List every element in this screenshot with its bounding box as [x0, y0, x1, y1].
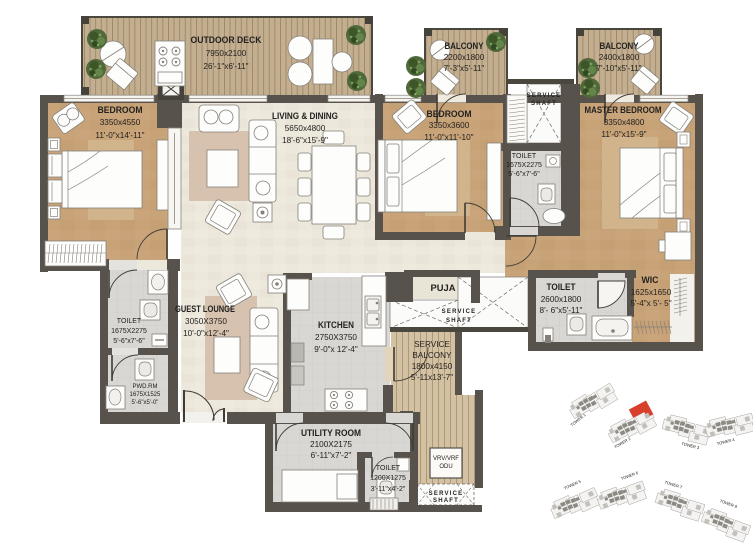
svg-text:5'-6"x7'-6": 5'-6"x7'-6" [508, 171, 540, 178]
svg-text:PWD.RM: PWD.RM [133, 384, 158, 390]
svg-text:1675X2275: 1675X2275 [506, 162, 542, 169]
svg-text:7'-10"x5'-11": 7'-10"x5'-11" [596, 64, 641, 73]
svg-text:2100X2175: 2100X2175 [310, 440, 352, 449]
svg-text:KITCHEN: KITCHEN [318, 320, 354, 330]
svg-text:5'-4"x 5'- 5": 5'-4"x 5'- 5" [630, 299, 671, 308]
svg-text:ODU: ODU [439, 464, 452, 470]
svg-text:TOILET: TOILET [547, 282, 576, 292]
svg-text:TOILET: TOILET [376, 465, 401, 472]
svg-text:9'-0"x 12'-4": 9'-0"x 12'-4" [314, 345, 358, 354]
svg-text:11'-0"x15'-9": 11'-0"x15'-9" [601, 130, 646, 139]
svg-text:5'-11x13'-7": 5'-11x13'-7" [411, 373, 453, 382]
svg-text:2200x1800: 2200x1800 [444, 53, 485, 62]
svg-text:26'-1"x6'-11": 26'-1"x6'-11" [203, 62, 248, 71]
svg-text:6'-11"x7'-2": 6'-11"x7'-2" [311, 451, 352, 460]
svg-text:MASTER BEDROOM: MASTER BEDROOM [585, 105, 662, 115]
svg-text:8'- 6"x5'-11": 8'- 6"x5'-11" [540, 306, 583, 315]
svg-text:TOILET: TOILET [512, 153, 537, 160]
svg-text:BEDROOM: BEDROOM [427, 109, 472, 119]
svg-text:1800x4150: 1800x4150 [412, 362, 453, 371]
svg-text:SERVICE: SERVICE [442, 309, 477, 315]
svg-text:BEDROOM: BEDROOM [98, 105, 143, 115]
svg-text:TOWER 8: TOWER 8 [719, 498, 738, 509]
svg-text:3350x3600: 3350x3600 [429, 121, 470, 130]
svg-text:2600x1800: 2600x1800 [541, 295, 582, 304]
svg-text:1675X1525: 1675X1525 [130, 392, 161, 398]
svg-text:7950x2100: 7950x2100 [206, 49, 247, 58]
svg-text:PUJA: PUJA [431, 283, 457, 293]
svg-text:TOWER 4: TOWER 4 [716, 437, 736, 446]
svg-text:SHAFT: SHAFT [446, 318, 472, 324]
svg-text:UTILITY ROOM: UTILITY ROOM [301, 428, 361, 438]
svg-text:OUTDOOR DECK: OUTDOOR DECK [191, 35, 262, 45]
svg-text:11'-0"x11'-10": 11'-0"x11'-10" [424, 133, 473, 142]
svg-text:TOWER 7: TOWER 7 [664, 480, 684, 490]
svg-text:TOILET: TOILET [117, 318, 142, 325]
svg-text:1200X1275: 1200X1275 [370, 475, 406, 482]
svg-text:LIVING & DINING: LIVING & DINING [272, 111, 338, 121]
svg-text:SHAFT: SHAFT [433, 498, 459, 504]
svg-text:GUEST LOUNGE: GUEST LOUNGE [175, 304, 235, 314]
svg-text:5'-6"x7'-6": 5'-6"x7'-6" [113, 338, 145, 345]
svg-text:SERVICE: SERVICE [429, 491, 464, 497]
svg-text:BALCONY: BALCONY [445, 41, 484, 51]
svg-text:1625x1650: 1625x1650 [631, 288, 672, 297]
svg-text:VRV/VRF: VRV/VRF [433, 456, 459, 462]
svg-text:BALCONY: BALCONY [600, 41, 639, 51]
svg-text:1675X2275: 1675X2275 [111, 328, 147, 335]
svg-text:5'-6"x5'-0": 5'-6"x5'-0" [132, 400, 159, 406]
svg-text:18'-6"x15'-9": 18'-6"x15'-9" [282, 136, 328, 145]
svg-text:3'-11"x4'-2": 3'-11"x4'-2" [371, 486, 406, 493]
svg-text:SHAFT: SHAFT [531, 101, 557, 107]
svg-text:BALCONY: BALCONY [412, 351, 452, 360]
svg-text:3350x4800: 3350x4800 [604, 118, 645, 127]
svg-text:2400x1800: 2400x1800 [599, 53, 640, 62]
svg-text:3350x4550: 3350x4550 [100, 118, 141, 127]
svg-text:3050X3750: 3050X3750 [185, 317, 227, 326]
svg-text:2750X3750: 2750X3750 [315, 333, 357, 342]
svg-text:SERVICE: SERVICE [527, 93, 562, 99]
svg-text:SERVICE: SERVICE [414, 340, 450, 349]
svg-text:10'-0"x12'-4": 10'-0"x12'-4" [183, 329, 229, 338]
svg-text:11'-0"x14'-11": 11'-0"x14'-11" [95, 131, 144, 140]
svg-text:TOWER 5: TOWER 5 [563, 478, 582, 490]
svg-text:TOWER 6: TOWER 6 [620, 470, 639, 481]
svg-text:7'-3"x5'-11": 7'-3"x5'-11" [444, 64, 485, 73]
svg-text:WIC: WIC [642, 275, 659, 285]
svg-text:5650x4800: 5650x4800 [285, 124, 326, 133]
